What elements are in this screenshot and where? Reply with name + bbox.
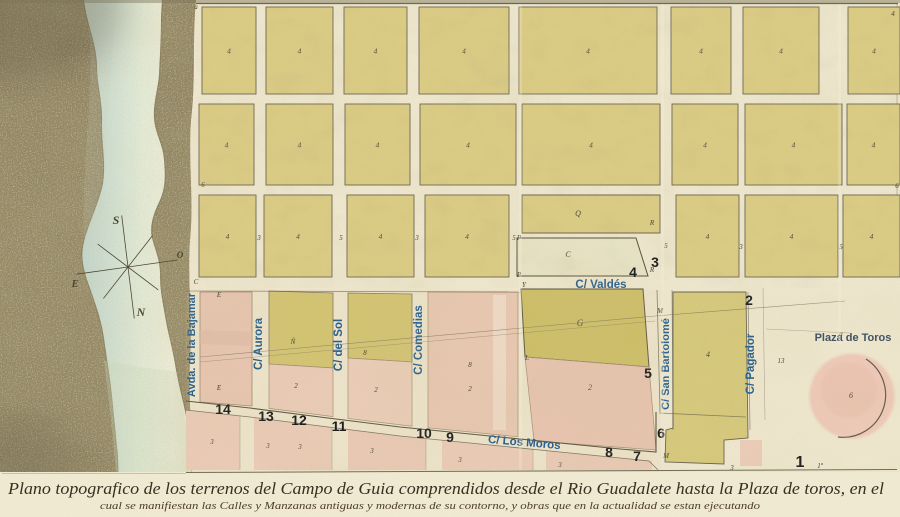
svg-text:Plano topografico de los terre: Plano topografico de los terrenos del Ca… bbox=[7, 479, 884, 498]
svg-text:cual se manifiestan las Calles: cual se manifiestan las Calles y Manzana… bbox=[100, 501, 760, 512]
